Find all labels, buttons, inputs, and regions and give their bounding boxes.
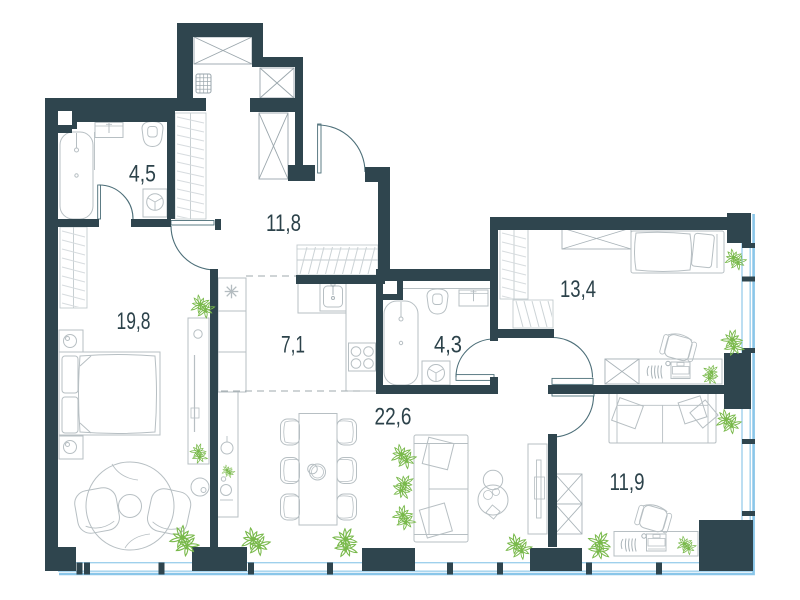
svg-text:11,8: 11,8 xyxy=(266,210,301,237)
svg-text:7,1: 7,1 xyxy=(281,331,305,358)
svg-text:4,5: 4,5 xyxy=(129,161,156,188)
svg-text:11,9: 11,9 xyxy=(610,469,645,496)
svg-text:13,4: 13,4 xyxy=(560,276,596,303)
svg-text:19,8: 19,8 xyxy=(117,308,151,335)
svg-text:4,3: 4,3 xyxy=(434,331,462,358)
svg-text:22,6: 22,6 xyxy=(375,403,412,430)
